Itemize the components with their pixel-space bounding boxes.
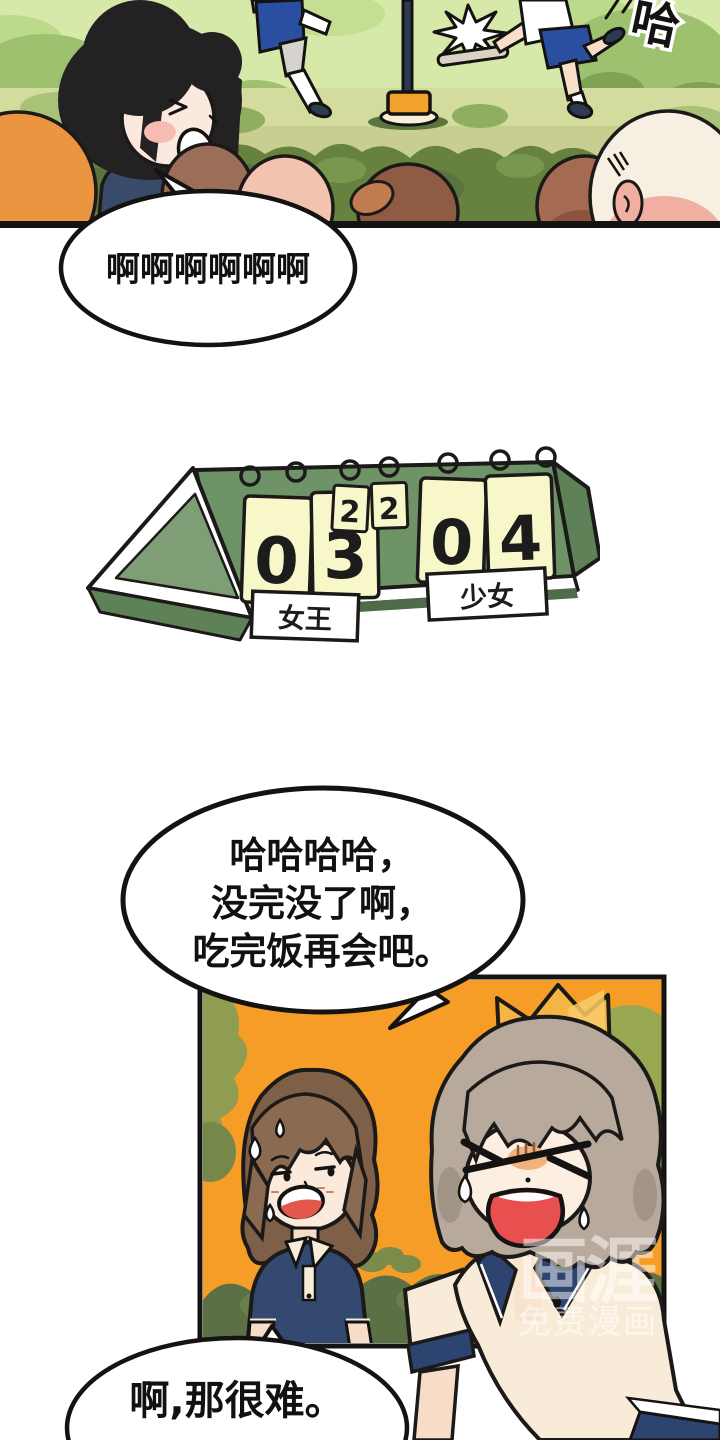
watermark-logo: 画涯 xyxy=(518,1229,657,1313)
speech-bubble-scream: 啊啊啊啊啊啊 xyxy=(40,140,380,355)
set-card-left: 2 xyxy=(332,485,369,532)
girl-character xyxy=(242,1070,377,1348)
speech-bubble-reply: 啊,那很难。 xyxy=(55,1315,425,1440)
laugh-line-1: 哈哈哈哈， xyxy=(230,834,415,877)
team-label-right: 少女 xyxy=(427,568,547,620)
svg-text:4: 4 xyxy=(498,501,544,575)
comic-page: 哈 xyxy=(0,0,720,1440)
svg-text:女王: 女王 xyxy=(277,602,332,636)
scoreboard: 0 3 2 2 0 4 xyxy=(88,448,600,641)
laugh-line-2: 没完没了啊， xyxy=(211,882,433,925)
reply-text: 啊,那很难。 xyxy=(129,1378,344,1424)
set-card-right: 2 xyxy=(371,482,408,528)
score-card-right-ones: 4 xyxy=(485,474,555,580)
watermark-tagline: 免费漫画 xyxy=(518,1302,658,1341)
score-card-left-tens: 0 xyxy=(241,496,313,604)
scream-text: 啊啊啊啊啊啊 xyxy=(106,250,310,290)
speech-bubble-laugh: 哈哈哈哈， 没完没了啊， 吃完饭再会吧。 xyxy=(105,775,545,1055)
svg-text:0: 0 xyxy=(253,524,300,600)
svg-text:少女: 少女 xyxy=(459,580,515,615)
svg-text:2: 2 xyxy=(378,492,400,528)
svg-text:2: 2 xyxy=(338,494,361,530)
score-card-right-tens: 0 xyxy=(417,478,487,584)
svg-text:0: 0 xyxy=(429,505,475,579)
laugh-line-3: 吃完饭再会吧。 xyxy=(193,930,452,973)
team-label-left: 女王 xyxy=(251,591,359,641)
scoreboard-illustration: 0 3 2 2 0 4 xyxy=(80,420,600,680)
